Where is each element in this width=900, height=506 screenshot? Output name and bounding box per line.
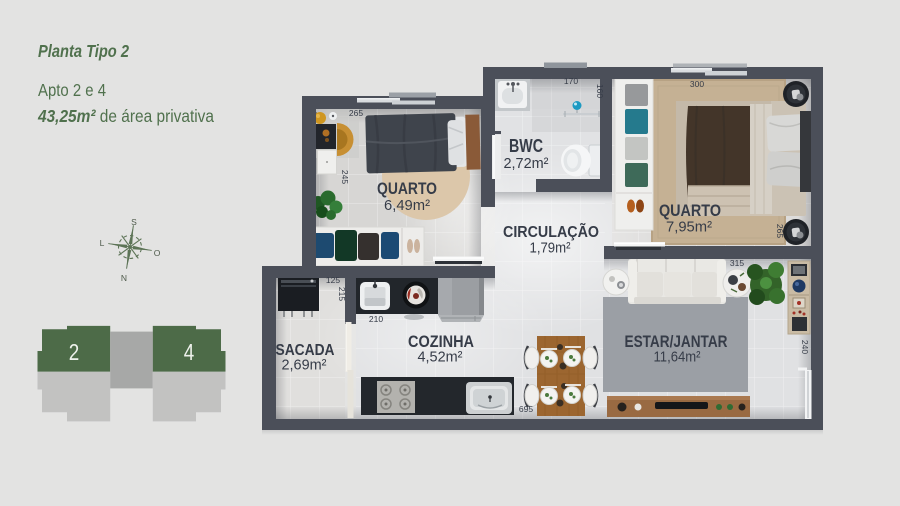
svg-text:4: 4 (184, 339, 195, 365)
svg-text:300: 300 (690, 79, 704, 89)
svg-text:Planta Tipo 2: Planta Tipo 2 (38, 41, 129, 61)
svg-text:6,49m²: 6,49m² (384, 197, 430, 214)
svg-text:O: O (154, 248, 161, 258)
svg-text:4,52m²: 4,52m² (418, 349, 463, 366)
svg-text:160: 160 (595, 84, 605, 98)
svg-text:BWC: BWC (509, 136, 543, 156)
svg-text:QUARTO: QUARTO (659, 201, 721, 220)
svg-text:265: 265 (349, 108, 363, 118)
svg-text:2: 2 (69, 339, 80, 365)
svg-text:695: 695 (519, 404, 533, 414)
svg-text:1,79m²: 1,79m² (530, 240, 571, 257)
svg-text:215: 215 (337, 287, 347, 301)
svg-text:125: 125 (326, 275, 340, 285)
svg-text:170: 170 (564, 76, 578, 86)
svg-text:L: L (100, 238, 105, 248)
svg-text:11,64m²: 11,64m² (654, 349, 701, 366)
svg-text:2,72m²: 2,72m² (504, 155, 549, 172)
svg-text:CIRCULAÇÃO: CIRCULAÇÃO (503, 221, 599, 241)
svg-text:265: 265 (775, 224, 785, 238)
svg-text:315: 315 (730, 258, 744, 268)
svg-text:Apto 2 e 4: Apto 2 e 4 (38, 80, 106, 100)
svg-text:7,95m²: 7,95m² (666, 219, 712, 236)
svg-text:S: S (131, 217, 137, 227)
svg-text:210: 210 (369, 314, 383, 324)
svg-text:240: 240 (800, 340, 810, 354)
svg-text:245: 245 (340, 170, 350, 184)
svg-text:2,69m²: 2,69m² (282, 357, 327, 374)
svg-text:N: N (121, 273, 127, 283)
svg-text:QUARTO: QUARTO (377, 179, 437, 198)
svg-text:43,25m² de área privativa: 43,25m² de área privativa (37, 106, 214, 126)
